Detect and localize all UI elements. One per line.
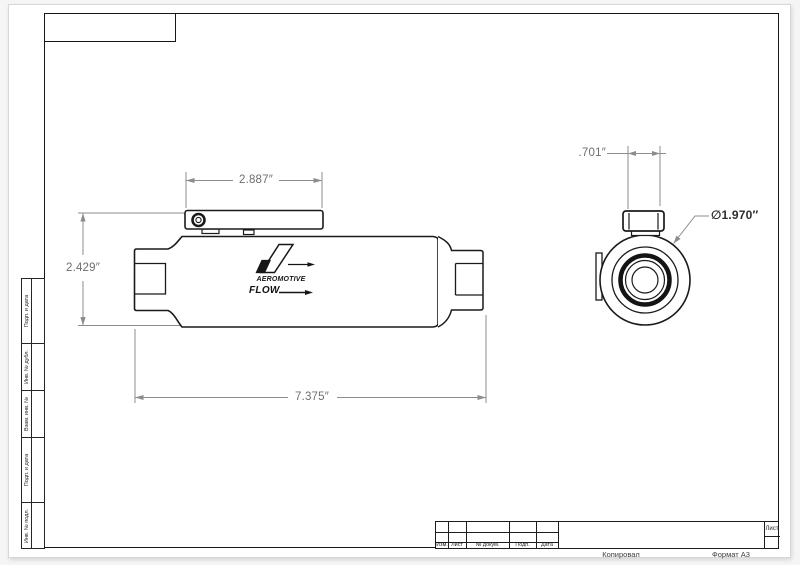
stamp-label: Взам. инв. №: [24, 397, 30, 431]
brand-name: AEROMOTIVE: [250, 276, 312, 284]
dim-bracket-width: 2.887″: [226, 174, 286, 186]
title-col-data: Дата: [536, 542, 558, 550]
title-block-line: [558, 522, 559, 548]
title-col-podp: Подп.: [509, 542, 536, 550]
title-block-line: [436, 532, 558, 533]
title-block: Изм. Лист № докум. Подп. Дата Лист: [435, 521, 779, 549]
drawing-frame-border: [44, 13, 779, 548]
stamp-label-cell: Инв. № дубл.: [22, 344, 32, 390]
title-col-dokum: № докум.: [466, 542, 509, 550]
stamp-label-cell: Взам. инв. №: [22, 391, 32, 437]
drawing-canvas: Подп. и дата Инв. № дубл. Взам. инв. № П…: [0, 0, 800, 565]
dim-overall-length: 7.375″: [282, 391, 342, 403]
stamp-label: Инв. № дубл.: [24, 350, 30, 384]
stamp-label-cell: Инв. № подл.: [22, 503, 32, 548]
dim-port-width: .701″: [566, 147, 606, 159]
format-label: Формат А3: [686, 550, 776, 560]
stamp-podp-data-1: Подп. и дата: [21, 278, 45, 344]
stamp-label-cell: Подп. и дата: [22, 279, 32, 343]
title-col-list: Лист: [448, 542, 466, 550]
stamp-label: Подп. и дата: [24, 454, 30, 486]
stamp-inv-podl: Инв. № подл.: [21, 502, 45, 549]
stamp-inv-dubl: Инв. № дубл.: [21, 343, 45, 391]
stamp-label-cell: Подп. и дата: [22, 438, 32, 502]
stamp-label: Подп. и дата: [24, 295, 30, 327]
stamp-podp-data-2: Подп. и дата: [21, 437, 45, 503]
dim-overall-height: 2.429″: [53, 262, 113, 274]
copied-label: Копировал: [576, 550, 666, 560]
top-left-stamp-box: [44, 13, 176, 42]
dim-body-diameter: ∅1.970″: [711, 209, 781, 221]
title-col-izm: Изм.: [436, 542, 448, 550]
title-block-line: [764, 536, 780, 537]
sheet-number-label: Лист: [764, 523, 780, 536]
flow-label: FLOW: [249, 285, 279, 296]
stamp-vzam-inv: Взам. инв. №: [21, 390, 45, 438]
stamp-label: Инв. № подл.: [24, 508, 30, 542]
